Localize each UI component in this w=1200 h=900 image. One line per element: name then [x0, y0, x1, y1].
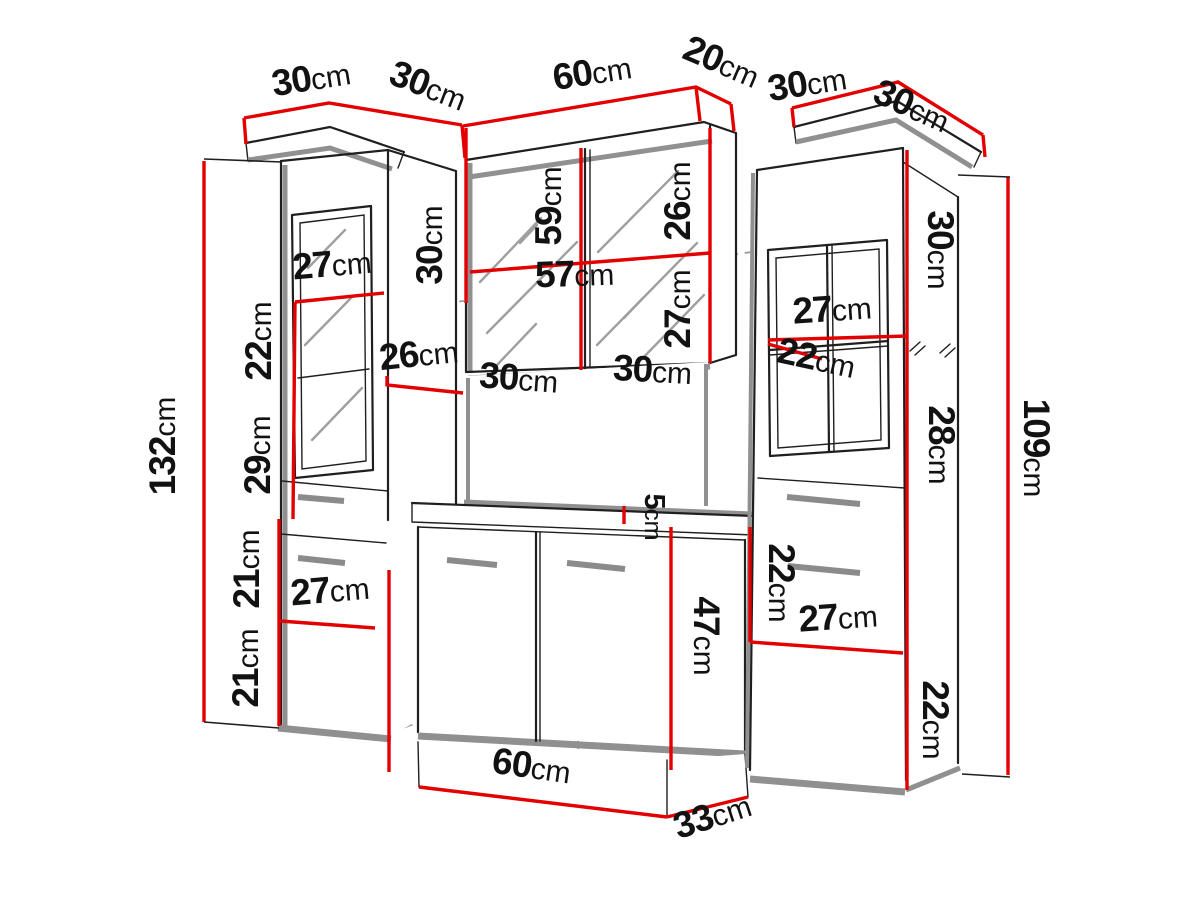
- label-right-109: 109cm: [1016, 399, 1057, 498]
- label-left-29: 29cm: [237, 415, 278, 494]
- label-top-mirror-depth: 20cm: [677, 27, 766, 96]
- label-top-left-width: 30cm: [269, 51, 354, 104]
- label-mirror-59: 59cm: [528, 166, 569, 245]
- right-cabinet-bottom-shadow: [750, 779, 905, 792]
- label-vanity-5: 5cm: [638, 493, 670, 540]
- left-cabinet-drawer-handle-1: [298, 497, 344, 501]
- label-mirror-27: 27cm: [657, 269, 698, 348]
- label-left-21a: 21cm: [226, 529, 267, 608]
- label-right-22b: 22cm: [915, 680, 956, 759]
- label-right-22a: 22cm: [761, 543, 802, 622]
- label-left-22: 22cm: [238, 301, 279, 380]
- label-right-28: 28cm: [921, 405, 962, 484]
- furniture-dimension-diagram: 30cm 30cm 60cm 20cm 30cm 30cm 132cm 27cm…: [0, 0, 1200, 900]
- label-top-mirror-width: 60cm: [550, 45, 635, 98]
- diagram-canvas: 30cm 30cm 60cm 20cm 30cm 30cm 132cm 27cm…: [0, 0, 1200, 900]
- label-top-right-width: 30cm: [765, 56, 850, 109]
- label-vanity-47: 47cm: [686, 596, 727, 675]
- label-left-height-132: 132cm: [142, 397, 183, 496]
- label-top-left-depth: 30cm: [384, 52, 473, 119]
- label-mirror-30-side: 30cm: [409, 205, 450, 284]
- label-right-30: 30cm: [920, 210, 961, 289]
- label-left-21b: 21cm: [225, 628, 266, 707]
- label-mirror-26: 26cm: [657, 161, 698, 240]
